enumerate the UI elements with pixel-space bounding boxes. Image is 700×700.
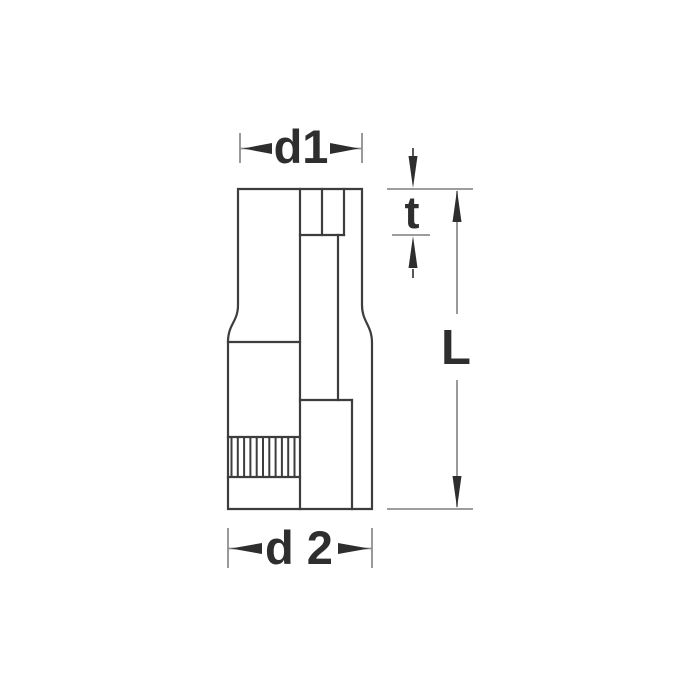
label-L: L [441,321,471,375]
t-arrow-down [409,156,418,188]
socket-dimension-diagram: d1 t L d 2 [0,0,700,700]
l-arrow-down [453,476,462,508]
d1-arrow-right [330,143,359,154]
label-d2: d 2 [265,521,333,574]
label-d1: d1 [274,120,329,173]
knurl-hatching [232,437,295,477]
label-t: t [405,187,420,238]
d1-arrow-left [243,143,272,154]
dimension-arrows [231,143,462,554]
l-arrow-up [453,190,462,222]
d2-arrow-right [338,543,369,554]
t-arrow-up [409,236,418,268]
d2-arrow-left [231,543,262,554]
dimension-guides [228,133,473,568]
drawing-canvas: d1 t L d 2 [0,0,700,700]
